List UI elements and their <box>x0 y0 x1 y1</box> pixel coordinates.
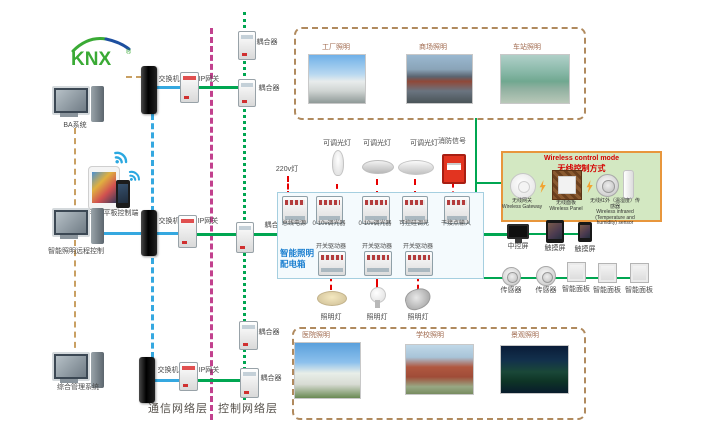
green-link-wireless <box>477 182 502 184</box>
input-label: 可调光灯 <box>317 140 357 148</box>
pc-tower-icon <box>91 352 104 388</box>
svg-text:KNX: KNX <box>71 49 111 70</box>
monitor-icon <box>52 208 90 237</box>
coupler <box>240 368 259 398</box>
building-label: 学校照明 <box>410 332 450 340</box>
diagram-canvas: KNX ® BA系统 手机平板控制端 智能照明远程控制 综合管理系统 交换机 I… <box>0 0 715 443</box>
green-link <box>584 277 599 279</box>
module-label: 0-10v调光器 <box>308 220 350 228</box>
wireless-device-label: 无线网关 Wireless Gateway <box>501 199 543 210</box>
screen-label: 触摸屏 <box>541 245 569 253</box>
sensor-icon <box>536 266 556 286</box>
pc-tower-icon <box>91 208 104 244</box>
spot-lamp-icon <box>403 285 434 312</box>
panel-label: 智能面板 <box>592 287 622 295</box>
communication-layer-label: 通信网络层 <box>148 400 208 416</box>
terminal-label: BA系统 <box>46 122 104 130</box>
green-link <box>529 233 546 235</box>
lightning-icon <box>538 180 547 193</box>
coupler <box>238 79 256 107</box>
switch-label: 交换机 <box>155 367 181 375</box>
blue-link <box>157 86 181 89</box>
wireless-gateway-icon <box>510 173 536 199</box>
building-photo-mall <box>406 54 473 104</box>
building-photo-landscape <box>500 345 569 394</box>
wireless-sensor-dome-icon <box>596 174 619 197</box>
wireless-device-en: Wireless Gateway <box>502 204 542 210</box>
terminal-label: 智能照明远程控制 <box>34 248 118 256</box>
input-label: 220v灯 <box>270 166 304 174</box>
blue-dashed-line <box>151 114 154 212</box>
building-label: 景观照明 <box>505 332 545 340</box>
touch-screen-icon <box>578 222 592 242</box>
coupler-label: 耦合器 <box>258 375 284 383</box>
dimmable-downlight-icon <box>362 160 394 174</box>
switch-actuator-module <box>364 251 392 276</box>
module-label: 开关驱动器 <box>355 243 399 251</box>
switch-label: 交换机 <box>156 76 182 84</box>
building-photo-hospital <box>294 342 361 399</box>
module-label: 可控硅调光 <box>394 220 434 228</box>
building-label: 商场照明 <box>413 44 453 52</box>
phone-icon <box>116 180 130 208</box>
terminal-label: 综合管理系统 <box>40 384 116 392</box>
screen-label: 触摸屏 <box>572 246 598 254</box>
switch-actuator-module <box>318 251 346 276</box>
smart-panel-icon <box>598 263 617 283</box>
building-label: 车站照明 <box>507 44 547 52</box>
wireless-sensor-bar-icon <box>623 170 634 199</box>
blue-dashed-line <box>151 258 154 358</box>
building-photo-factory <box>308 54 366 104</box>
ip-gateway-label: IP网关 <box>195 76 223 84</box>
panel-label: 智能面板 <box>624 287 654 295</box>
green-link <box>196 86 244 89</box>
wireless-device-label: 无线面板 Wireless Panel <box>546 201 586 212</box>
smart-panel-icon <box>567 262 586 282</box>
coupler <box>236 222 254 253</box>
wireless-device-en: Wireless infrared (Temperature and humid… <box>595 209 634 226</box>
wireless-device-en: Wireless Panel <box>549 206 582 212</box>
module-label: 开关驱动器 <box>309 243 353 251</box>
svg-text:®: ® <box>126 48 132 56</box>
network-switch <box>141 210 157 256</box>
building-label: 工厂照明 <box>316 44 356 52</box>
sensor-icon <box>502 267 521 286</box>
building-label: 医院照明 <box>296 332 336 340</box>
touch-screen-icon <box>546 220 564 243</box>
ip-gateway-label: IP网关 <box>194 218 222 226</box>
building-photo-station <box>500 54 570 104</box>
module-label: 0-10v调光器 <box>354 220 396 228</box>
lamp-label: 照明灯 <box>362 314 392 322</box>
monitor-icon <box>52 86 90 115</box>
wireless-device-label: 无线红外（温湿度）传感器 Wireless infrared (Temperat… <box>589 199 641 227</box>
network-switch <box>141 66 157 114</box>
control-layer-label: 控制网络层 <box>218 400 278 416</box>
wireless-title-en: Wireless control mode <box>503 155 660 162</box>
lightning-icon <box>585 180 594 193</box>
module-label: 开关驱动器 <box>396 243 440 251</box>
computer-remote-control <box>52 208 104 250</box>
monitor-stand <box>60 113 78 117</box>
module-label: 干接点输入 <box>436 220 476 228</box>
ceiling-lamp-icon <box>317 291 347 306</box>
monitor-stand <box>60 379 78 383</box>
monitor-icon <box>52 352 90 381</box>
coupler-label: 耦合器 <box>256 85 282 93</box>
input-label: 消防信号 <box>432 138 472 146</box>
screen-label: 中控屏 <box>503 243 533 251</box>
green-link <box>196 379 244 382</box>
bulb-lamp-icon <box>370 287 386 303</box>
switch-actuator-module <box>405 251 433 276</box>
dimmable-lamp-icon <box>332 150 344 176</box>
wireless-panel-icon <box>552 170 582 200</box>
wireless-device-zh: 无线红外（温湿度）传感器 <box>590 198 640 210</box>
network-switch <box>139 357 155 403</box>
sensor-label: 传感器 <box>495 287 527 295</box>
input-label: 可调光灯 <box>357 140 397 148</box>
panel-label: 智能面板 <box>561 286 591 294</box>
pc-tower-icon <box>91 86 104 122</box>
sensor-label: 传感器 <box>530 287 562 295</box>
lamp-label: 照明灯 <box>316 314 346 322</box>
building-photo-school <box>405 344 474 395</box>
ip-gateway-label: IP网关 <box>195 367 223 375</box>
smart-panel-icon <box>630 263 649 283</box>
tan-dashed-line <box>126 76 142 78</box>
coupler-label: 耦合器 <box>256 329 282 337</box>
dimmable-ceiling-lamp-icon <box>398 160 434 175</box>
blue-link <box>155 379 180 382</box>
coupler-label: 耦合器 <box>254 39 280 47</box>
distribution-box-title-2: 配电箱 <box>280 259 306 269</box>
monitor-stand <box>60 235 78 239</box>
lamp-label: 照明灯 <box>403 314 433 322</box>
green-link <box>562 233 578 235</box>
wireless-control-box: Wireless control mode 无线控制方式 无线网关 Wirele… <box>501 151 662 222</box>
blue-link <box>102 232 178 235</box>
central-screen-icon <box>507 224 529 239</box>
knx-logo: KNX ® <box>66 34 136 70</box>
fire-alarm-icon <box>442 154 466 184</box>
